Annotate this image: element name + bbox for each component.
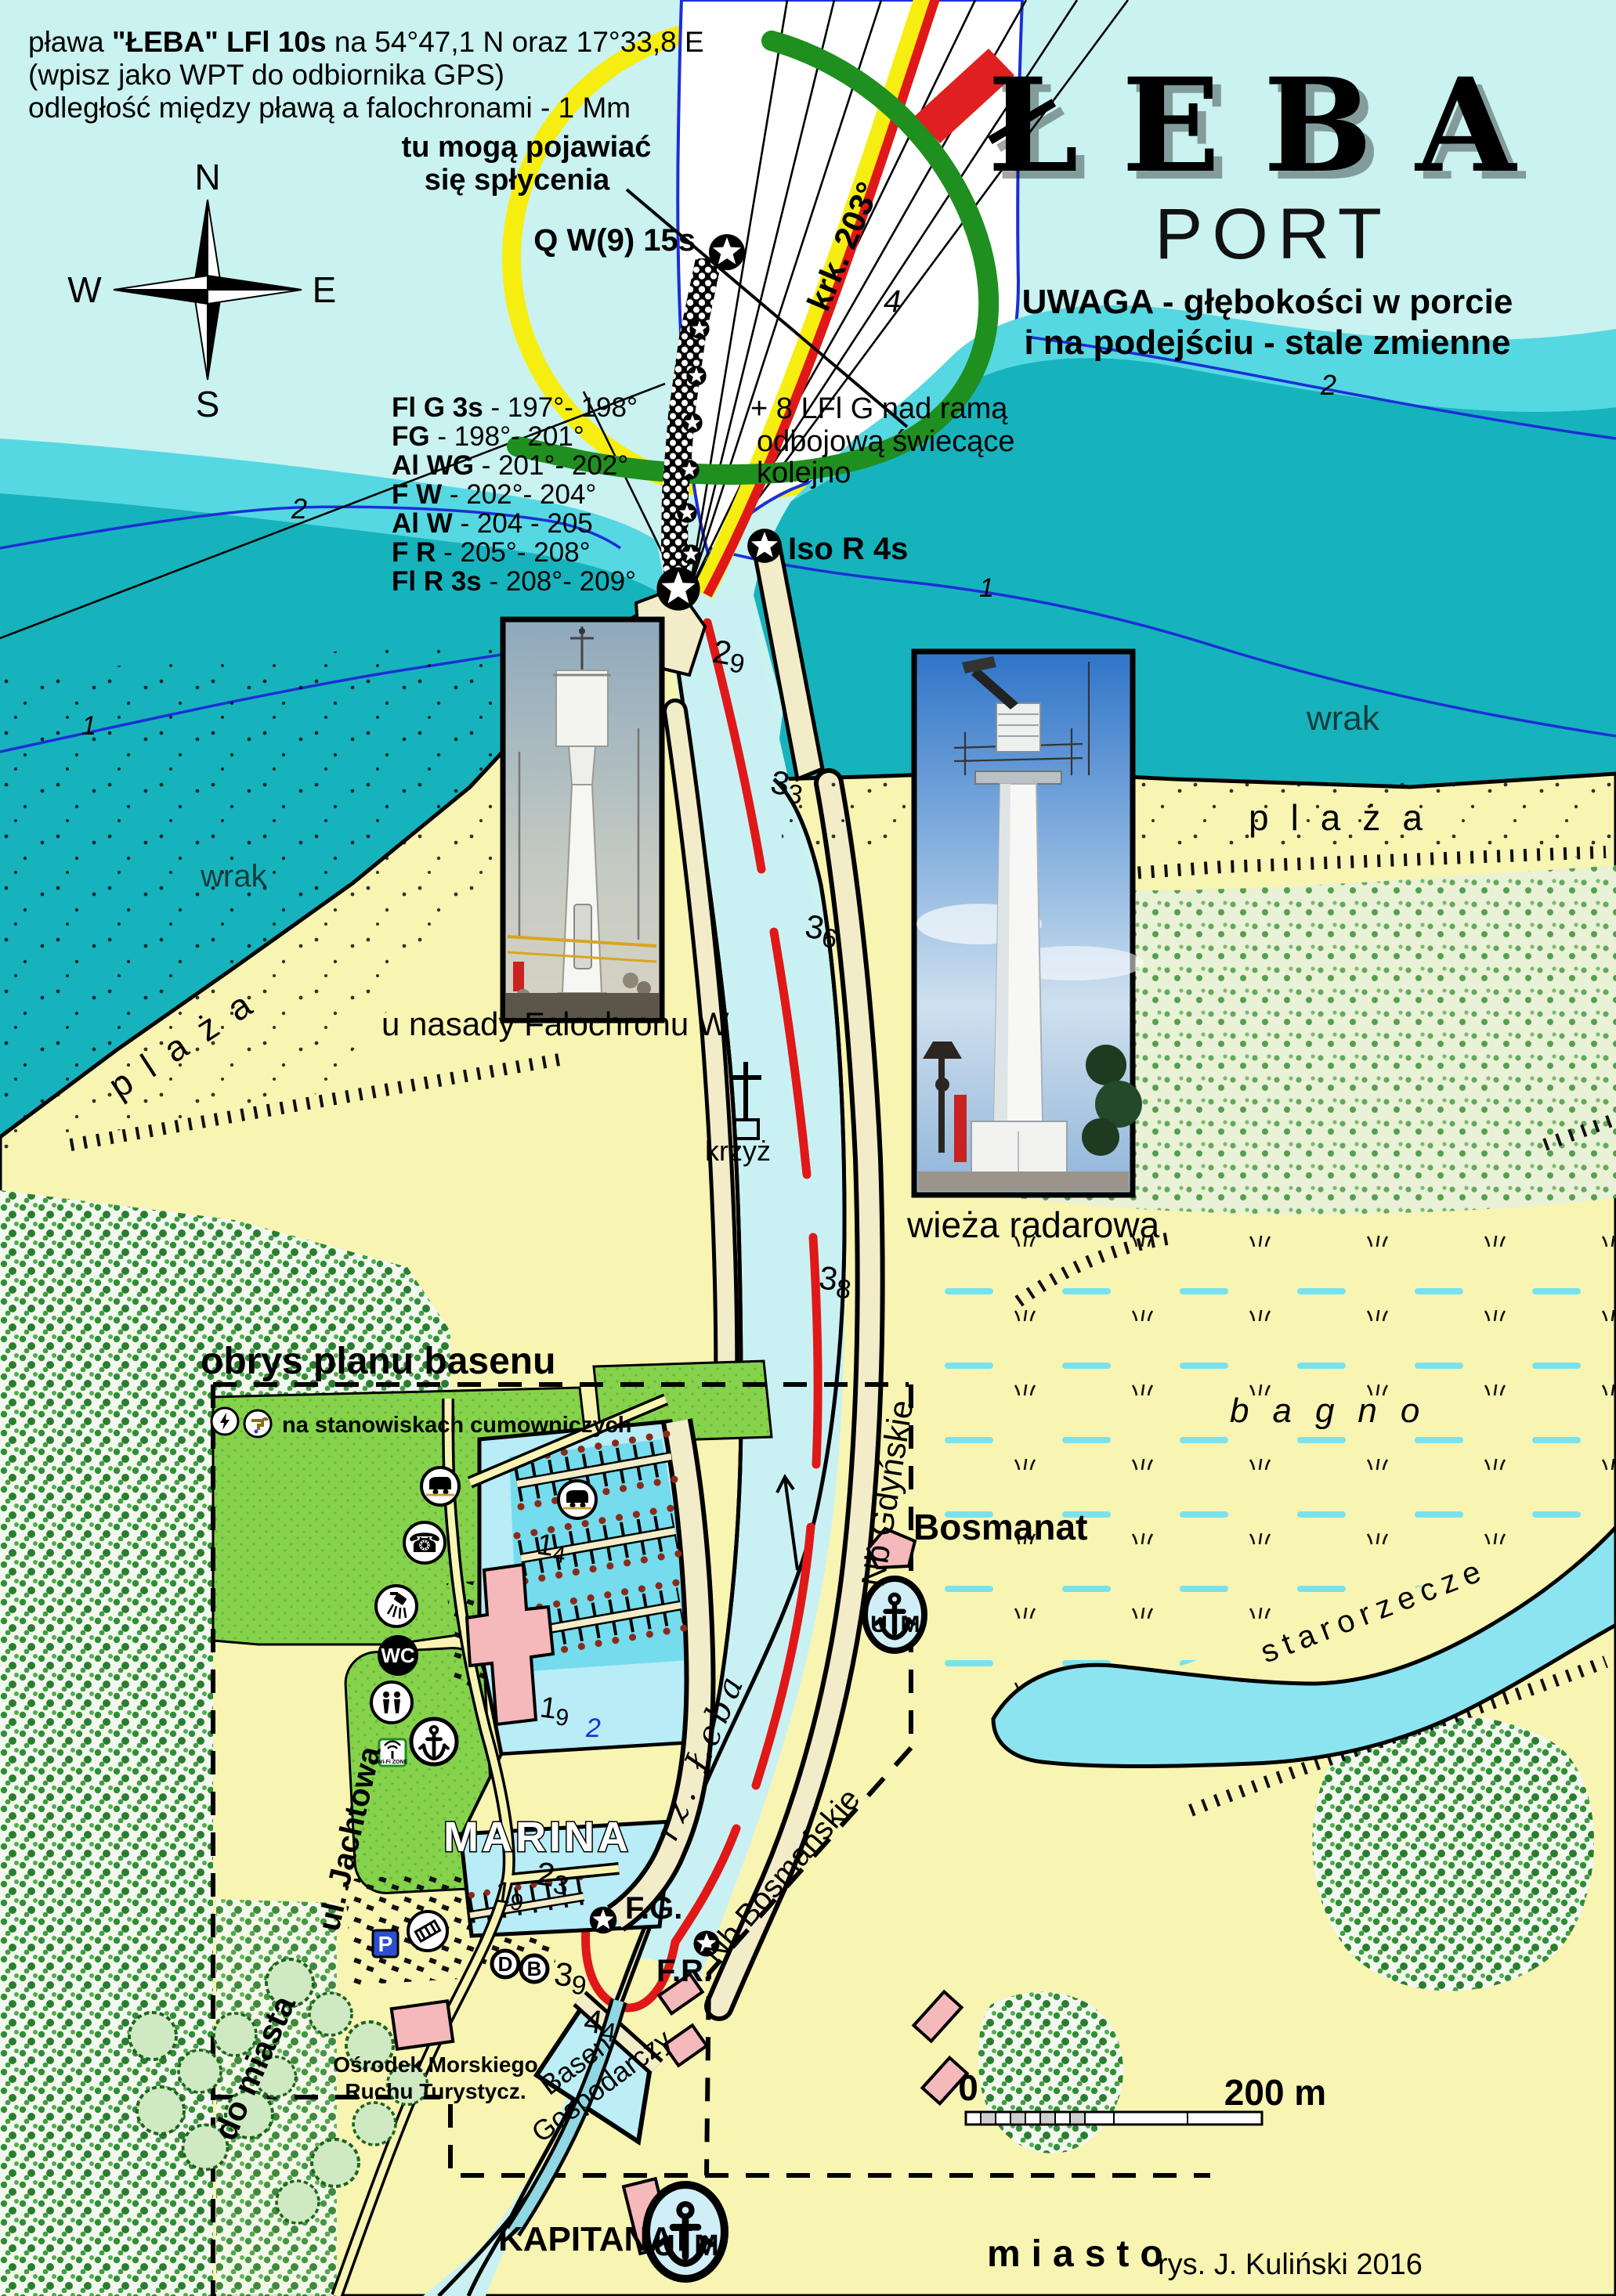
na-stanowiskach: na stanowiskach cumowniczych — [282, 1413, 631, 1438]
bagno-label: bagno — [1230, 1392, 1443, 1430]
svg-text:☎: ☎ — [408, 1529, 441, 1558]
sector-3: Al WG - 201°- 202° — [392, 450, 628, 481]
icon-shower — [376, 1586, 417, 1626]
note-buoy-line1: pława "ŁEBA" LFl 10s na 54°47,1 N oraz 1… — [28, 26, 704, 58]
note-buoy-line3: odległość między pławą a falochronami - … — [28, 92, 631, 124]
compass-e: E — [313, 269, 337, 310]
scale-zero: 0 — [958, 2067, 978, 2108]
compass-w: W — [67, 269, 102, 310]
contour-2-right: 2 — [1320, 369, 1336, 401]
sector-6: F R - 205°- 208° — [392, 537, 591, 568]
marina-label: MARINA — [443, 1814, 631, 1861]
contour-1-right: 1 — [979, 573, 994, 603]
osrodek-building — [392, 2001, 454, 2049]
icon-water-tap — [244, 1410, 271, 1437]
west-lights-note-3: kolejno — [757, 457, 851, 489]
plaza-right: plaża — [1249, 797, 1444, 838]
port-chart: ☎ WC Wi-Fi ZONE P D B U M U M — [0, 0, 1616, 2296]
fg-label: F.G. — [625, 1891, 682, 1926]
warning-2: i na podejściu - stale zmienne — [1024, 323, 1510, 362]
shoals-note-1: tu mogą pojawiać — [402, 131, 652, 164]
icon-anchorage — [411, 1719, 457, 1764]
um-emblem-small: U M — [865, 1579, 924, 1651]
osrodek-1: Ośrodek Morskiego — [333, 2052, 537, 2077]
icon-wc: WC — [378, 1635, 418, 1676]
note-buoy-line2: (wpisz jako WPT do odbiornika GPS) — [28, 59, 504, 91]
osrodek-2: Ruchu Turystycz. — [345, 2079, 526, 2103]
wrak-left: wrak — [200, 859, 267, 893]
warning-1: UWAGA - głębokości w porcie — [1022, 283, 1513, 321]
buoy-label: Q W(9) 15s — [533, 223, 696, 258]
krzyz-label: krzyż — [705, 1135, 771, 1167]
icon-caravan-1 — [421, 1467, 459, 1505]
sector-5: Al W - 204 - 205 — [392, 508, 593, 539]
compass-s: S — [196, 384, 220, 424]
icon-electric — [211, 1408, 238, 1435]
kapitanat-label: KAPITANAT — [498, 2220, 692, 2258]
marina-depth-2: 2 — [585, 1713, 601, 1743]
caption-beacon: u nasady Falochronu W — [381, 1005, 729, 1042]
fg-light-star — [590, 1907, 617, 1934]
sector-4: F W - 202°- 204° — [392, 479, 596, 510]
svg-text:P: P — [378, 1932, 393, 1956]
photo-beacon-tower — [503, 619, 662, 1020]
svg-text:WC: WC — [381, 1644, 415, 1667]
caption-radar: wieża radarowa — [906, 1204, 1160, 1245]
svg-text:M: M — [901, 1612, 920, 1637]
photo-radar-tower — [914, 652, 1144, 1195]
icon-phone: ☎ — [404, 1522, 445, 1563]
miasto-label: miasto — [987, 2233, 1174, 2275]
scale-max: 200 m — [1224, 2072, 1326, 2113]
icon-fuel-d: D — [492, 1951, 519, 1977]
svg-text:B: B — [527, 1957, 542, 1980]
svg-text:D: D — [498, 1952, 513, 1976]
icon-slipway — [408, 1912, 447, 1951]
iso-r-light-star — [747, 529, 782, 563]
contour-1-left: 1 — [81, 711, 96, 741]
svg-text:U: U — [870, 1612, 888, 1637]
sector-7: Fl R 3s - 208°- 209° — [392, 566, 636, 597]
shoals-note-2: się spłycenia — [425, 164, 610, 197]
sector-1: Fl G 3s - 197°- 198° — [392, 392, 638, 423]
icon-changing-room — [371, 1682, 412, 1723]
svg-text:M: M — [694, 2229, 719, 2262]
title-sub: PORT — [1155, 194, 1391, 274]
contour-2-left: 2 — [291, 493, 307, 525]
fr-label: F.R. — [656, 1954, 712, 1988]
main-head-light-star — [656, 567, 700, 610]
green-blob-se — [1312, 1716, 1594, 1991]
west-lights-note-2: odbojową świecące — [757, 425, 1015, 458]
beach-sand-dots-right — [775, 777, 1616, 857]
icon-fuel-b: B — [521, 1955, 548, 1982]
obrys-title: obrys planu basenu — [201, 1341, 555, 1382]
bosmanat-label: Bosmanat — [913, 1507, 1087, 1547]
contour-4: 4 — [884, 284, 901, 319]
iso-r-label: Iso R 4s — [788, 532, 908, 566]
compass-n: N — [194, 157, 220, 197]
icon-caravan-2 — [559, 1481, 596, 1518]
credit-label: rys. J. Kuliński 2016 — [1158, 2248, 1423, 2281]
sector-2: FG - 198°- 201° — [392, 421, 584, 452]
icon-parking: P — [373, 1930, 398, 1957]
wrak-right: wrak — [1306, 699, 1380, 738]
west-lights-note-1: + 8 LFl G nad ramą — [750, 392, 1008, 425]
title-main: ŁEBA — [987, 49, 1559, 201]
